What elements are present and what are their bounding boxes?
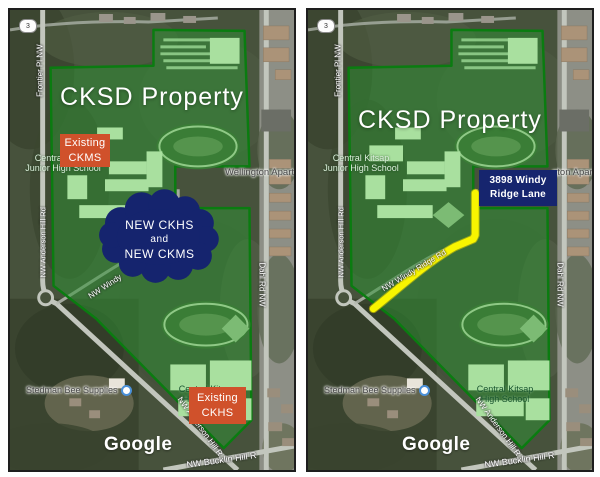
- map-after-windy-ridge-lane: 3 Frontier Pl NW NW Anderson Hill Rd Cen…: [306, 8, 594, 472]
- new-schools-cloud-text: NEW CKHS and NEW CKMS: [102, 217, 217, 263]
- map-before-existing-schools: 3 Frontier Pl NW NW Anderson Hill Rd Cen…: [8, 8, 296, 472]
- windy-ridge-lane-address-callout: 3898 Windy Ridge Lane: [479, 170, 557, 206]
- two-map-figure: 3 Frontier Pl NW NW Anderson Hill Rd Cen…: [0, 0, 600, 477]
- route-3-badge: 3: [317, 19, 335, 33]
- route-3-badge: 3: [19, 19, 37, 33]
- existing-ckms-callout: Existing CKMS: [60, 134, 110, 167]
- satellite-basemap-right: [308, 10, 592, 470]
- existing-ckhs-callout: Existing CKHS: [189, 387, 246, 424]
